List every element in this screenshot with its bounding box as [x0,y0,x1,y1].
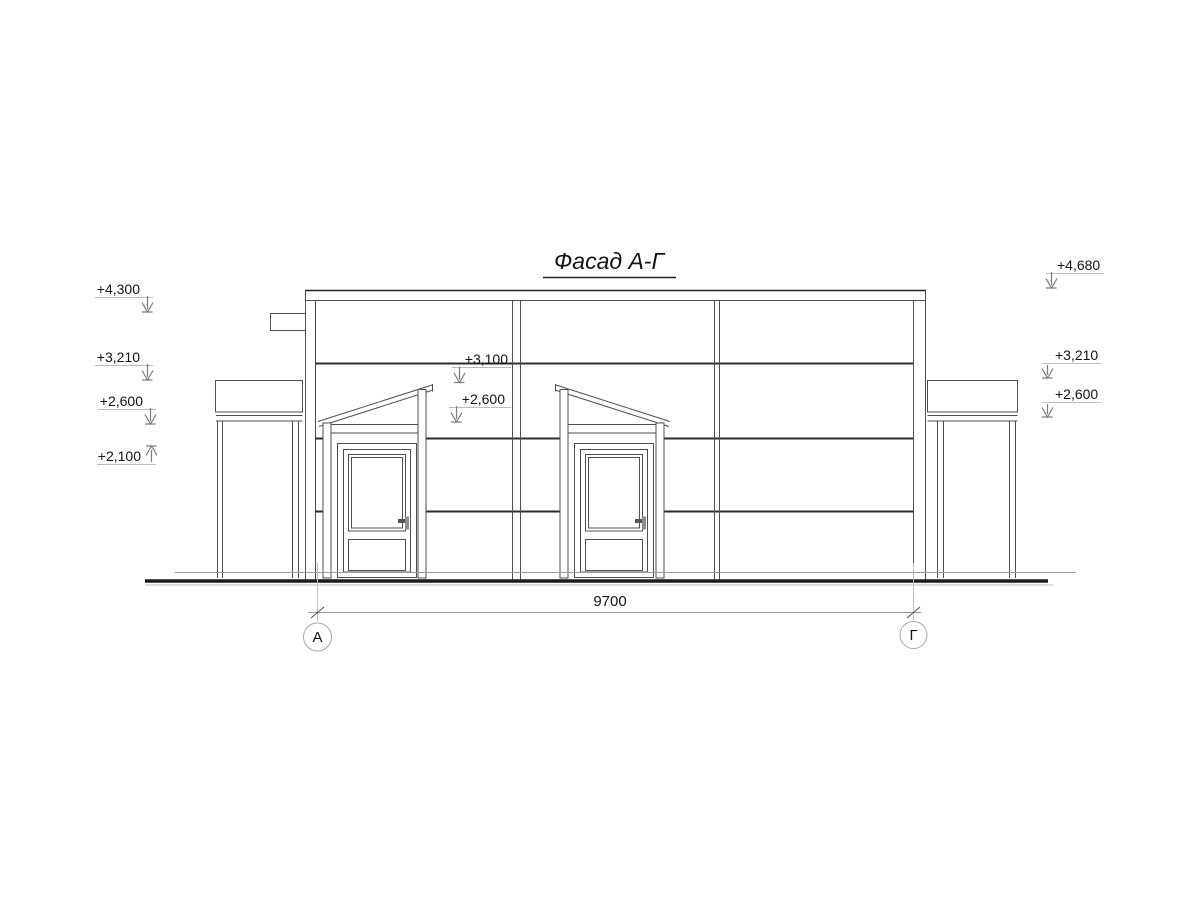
canopy-top-line [318,385,432,422]
vent-box [271,314,306,331]
left-entrance-post-right [418,390,426,579]
elevation-mark-4680: +4,680 [1046,257,1104,288]
elevation-marks-center: +3,100 +2,600 [449,351,511,422]
elevation-mark-2600: +2,600 [449,391,511,422]
axis-a-label: А [312,629,322,646]
canopy-bottom-line [555,390,669,427]
elevation-label: +2,100 [98,448,141,464]
level-arrow-down-icon [145,408,156,424]
level-arrow-down-icon [1046,272,1057,288]
door-handle-plate [642,517,646,530]
right-door [575,444,654,578]
elevation-label: +2,600 [1055,386,1098,402]
elevation-label: +2,600 [462,391,505,407]
canopy-top-line [556,385,670,422]
level-arrow-down-icon [1042,365,1053,378]
elevation-marks-right: +4,680 +3,210 +2,600 [1042,257,1104,417]
elevation-mark-3100: +3,100 [452,351,511,383]
door-frame [338,444,417,578]
elevation-label: +4,300 [97,281,140,297]
left-entrance [318,384,433,578]
elevation-label: +2,600 [100,393,143,409]
elevation-mark-3210: +3,210 [95,349,153,380]
door-frame [575,444,654,578]
elevation-mark-2600: +2,600 [98,393,156,424]
right-porch-fascia [928,381,1018,413]
level-arrow-down-icon [142,296,153,312]
dimension-value: 9700 [593,593,626,610]
right-canopy [555,384,670,427]
level-arrow-down-icon [451,406,462,422]
elevation-mark-2600: +2,600 [1042,386,1101,417]
drawing-sheet: Фасад А-Г [0,0,1200,900]
left-porch [216,381,303,579]
elevation-mark-4300: +4,300 [95,281,153,312]
right-porch [928,381,1018,579]
level-arrow-down-icon [142,364,153,380]
level-arrow-up-icon [146,446,157,462]
canopy-bottom-line [319,390,433,427]
left-entrance-post-left [323,423,331,578]
left-porch-fascia [216,381,303,413]
door-handle-plate [405,517,409,530]
right-entrance-post-left [560,390,568,579]
elevation-label: +3,210 [1055,347,1098,363]
elevation-label: +4,680 [1057,257,1100,273]
elevation-marks-left: +4,300 +3,210 +2,600 +2,100 [95,281,157,465]
elevation-mark-3210: +3,210 [1042,347,1101,378]
elevation-label: +3,100 [465,351,508,367]
elevation-label: +3,210 [97,349,140,365]
level-arrow-down-icon [454,367,465,383]
page-title: Фасад А-Г [554,248,665,274]
axis-g-label: Г [909,627,917,644]
left-door [338,444,417,578]
drawing-title: Фасад А-Г [543,248,676,278]
right-entrance-post-right [656,423,664,578]
facade-elevation-drawing: Фасад А-Г [0,0,1200,900]
right-entrance [555,384,670,578]
elevation-mark-2100: +2,100 [97,446,157,465]
left-canopy [318,384,433,427]
level-arrow-down-icon [1042,404,1053,417]
